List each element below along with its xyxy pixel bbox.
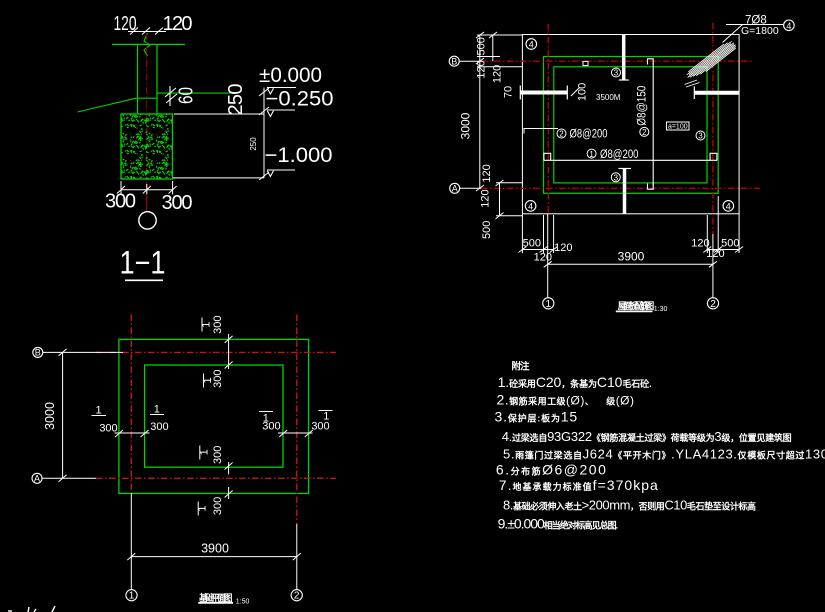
svg-text:4: 4 — [528, 201, 533, 211]
svg-text:1: 1 — [589, 150, 594, 159]
svg-text:120: 120 — [481, 164, 493, 182]
svg-text:4: 4 — [786, 21, 791, 31]
svg-text:−1.000: −1.000 — [265, 144, 333, 167]
svg-text:300: 300 — [212, 370, 224, 388]
svg-text:1:50: 1:50 — [236, 599, 250, 606]
svg-text:120: 120 — [534, 252, 552, 264]
svg-text:250: 250 — [225, 84, 247, 116]
svg-text:300: 300 — [105, 191, 136, 213]
svg-text:B: B — [451, 57, 457, 67]
svg-text:2: 2 — [294, 591, 300, 602]
svg-text:3: 3 — [614, 174, 619, 183]
svg-text:Ø8@150: Ø8@150 — [637, 86, 649, 126]
svg-text:3000: 3000 — [458, 112, 472, 139]
svg-text:500: 500 — [481, 221, 493, 239]
svg-text:300: 300 — [262, 420, 280, 432]
svg-text:120: 120 — [706, 248, 724, 260]
svg-text:1: 1 — [95, 405, 101, 417]
svg-text:120: 120 — [475, 60, 487, 78]
svg-text:70: 70 — [503, 86, 515, 98]
svg-text:4: 4 — [529, 40, 534, 50]
svg-text:300: 300 — [99, 423, 117, 435]
svg-text:−0.250: −0.250 — [266, 88, 334, 111]
svg-text:1−1: 1−1 — [120, 245, 166, 281]
svg-text:附注: 附注 — [512, 361, 530, 373]
svg-text:Ø8@200: Ø8@200 — [600, 149, 639, 161]
svg-text:2: 2 — [710, 299, 716, 310]
svg-text:3900: 3900 — [618, 250, 645, 264]
svg-text:1: 1 — [546, 299, 552, 310]
svg-text:1: 1 — [154, 404, 160, 416]
svg-text:A: A — [34, 474, 40, 484]
svg-text:300: 300 — [212, 446, 224, 464]
svg-text:基础平面图: 基础平面图 — [198, 592, 233, 603]
svg-text:500: 500 — [523, 237, 541, 249]
svg-text:B: B — [35, 348, 41, 358]
svg-text:2: 2 — [642, 128, 647, 137]
svg-text:60: 60 — [176, 87, 198, 104]
svg-text:屋面板配筋图: 屋面板配筋图 — [618, 300, 655, 311]
svg-text:300: 300 — [212, 316, 224, 334]
svg-text:1: 1 — [201, 322, 213, 328]
svg-text:500: 500 — [475, 37, 487, 55]
svg-text:1: 1 — [129, 591, 135, 602]
svg-text:3000: 3000 — [43, 402, 57, 430]
svg-text:1: 1 — [197, 505, 209, 511]
svg-text:4: 4 — [726, 201, 731, 211]
svg-text:250: 250 — [249, 137, 258, 151]
svg-text:120: 120 — [163, 13, 193, 35]
svg-text:300: 300 — [212, 497, 224, 515]
svg-text:1:30: 1:30 — [654, 306, 668, 313]
svg-text:±0.000: ±0.000 — [259, 64, 322, 87]
svg-text:1: 1 — [198, 449, 210, 455]
svg-text:G=1800: G=1800 — [741, 25, 779, 37]
svg-text:3: 3 — [614, 69, 619, 78]
svg-text:300: 300 — [311, 420, 329, 432]
svg-text:120: 120 — [554, 242, 572, 254]
svg-text:120: 120 — [480, 189, 492, 207]
svg-text:100: 100 — [577, 83, 589, 101]
svg-text:120: 120 — [492, 65, 504, 83]
svg-text:a=100: a=100 — [668, 124, 688, 131]
svg-text:A: A — [452, 184, 458, 194]
svg-text:3: 3 — [698, 132, 703, 141]
svg-text:Ø8@200: Ø8@200 — [570, 128, 608, 140]
svg-text:300: 300 — [150, 421, 168, 433]
svg-text:2: 2 — [559, 130, 564, 139]
svg-text:300: 300 — [162, 192, 193, 214]
svg-text:3500M: 3500M — [596, 93, 621, 102]
svg-text:3900: 3900 — [201, 542, 229, 556]
